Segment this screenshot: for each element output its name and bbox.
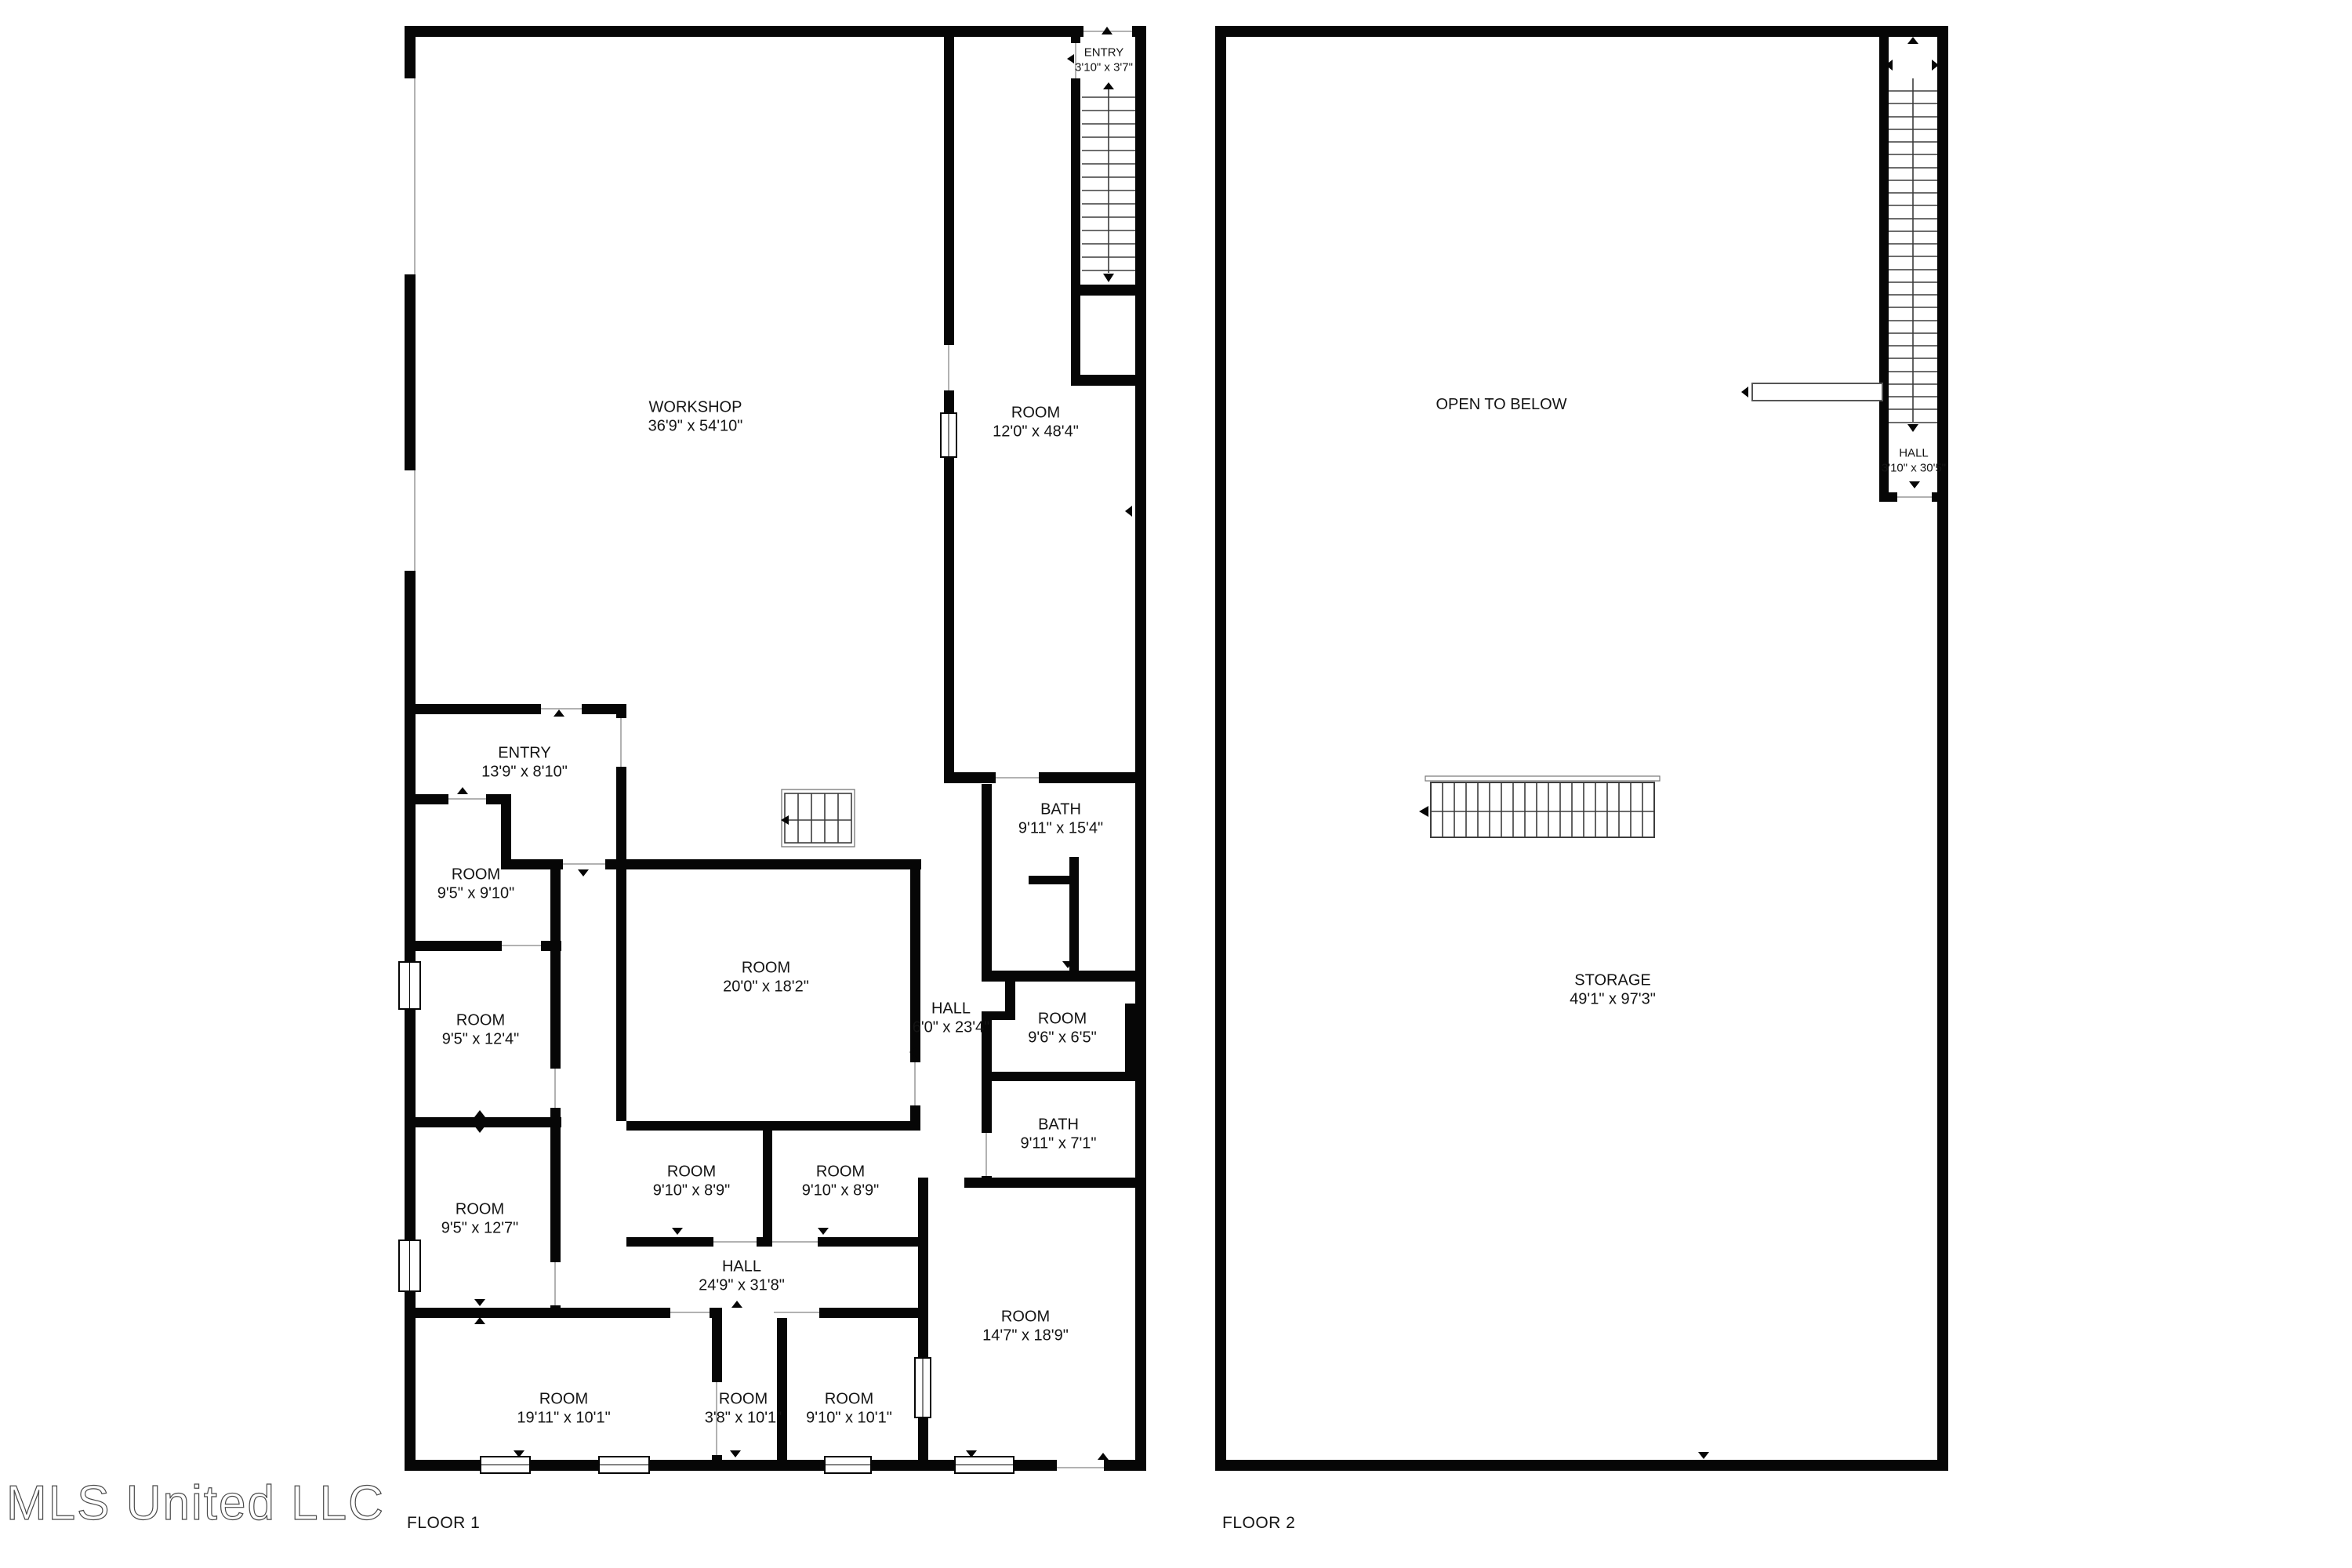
floor2-ledge bbox=[1752, 383, 1882, 401]
floor2-walls bbox=[1215, 26, 1948, 1471]
floor1-entry-stairs bbox=[1082, 84, 1135, 273]
floor2-middle-stairs bbox=[1419, 776, 1660, 837]
floor2-caption: FLOOR 2 bbox=[1222, 1514, 1295, 1533]
floor1-caption: FLOOR 1 bbox=[407, 1514, 480, 1533]
floor1-central-stairs bbox=[781, 789, 855, 847]
watermark-text: MLS United LLC bbox=[6, 1476, 385, 1530]
watermark-logo: MLS United LLC bbox=[0, 0, 706, 1568]
floor-plan-page: MLS United LLC ENTRY3'10" x 3'7"WORKSHOP… bbox=[0, 0, 2352, 1568]
floor2-hall-stairs bbox=[1889, 78, 1937, 423]
